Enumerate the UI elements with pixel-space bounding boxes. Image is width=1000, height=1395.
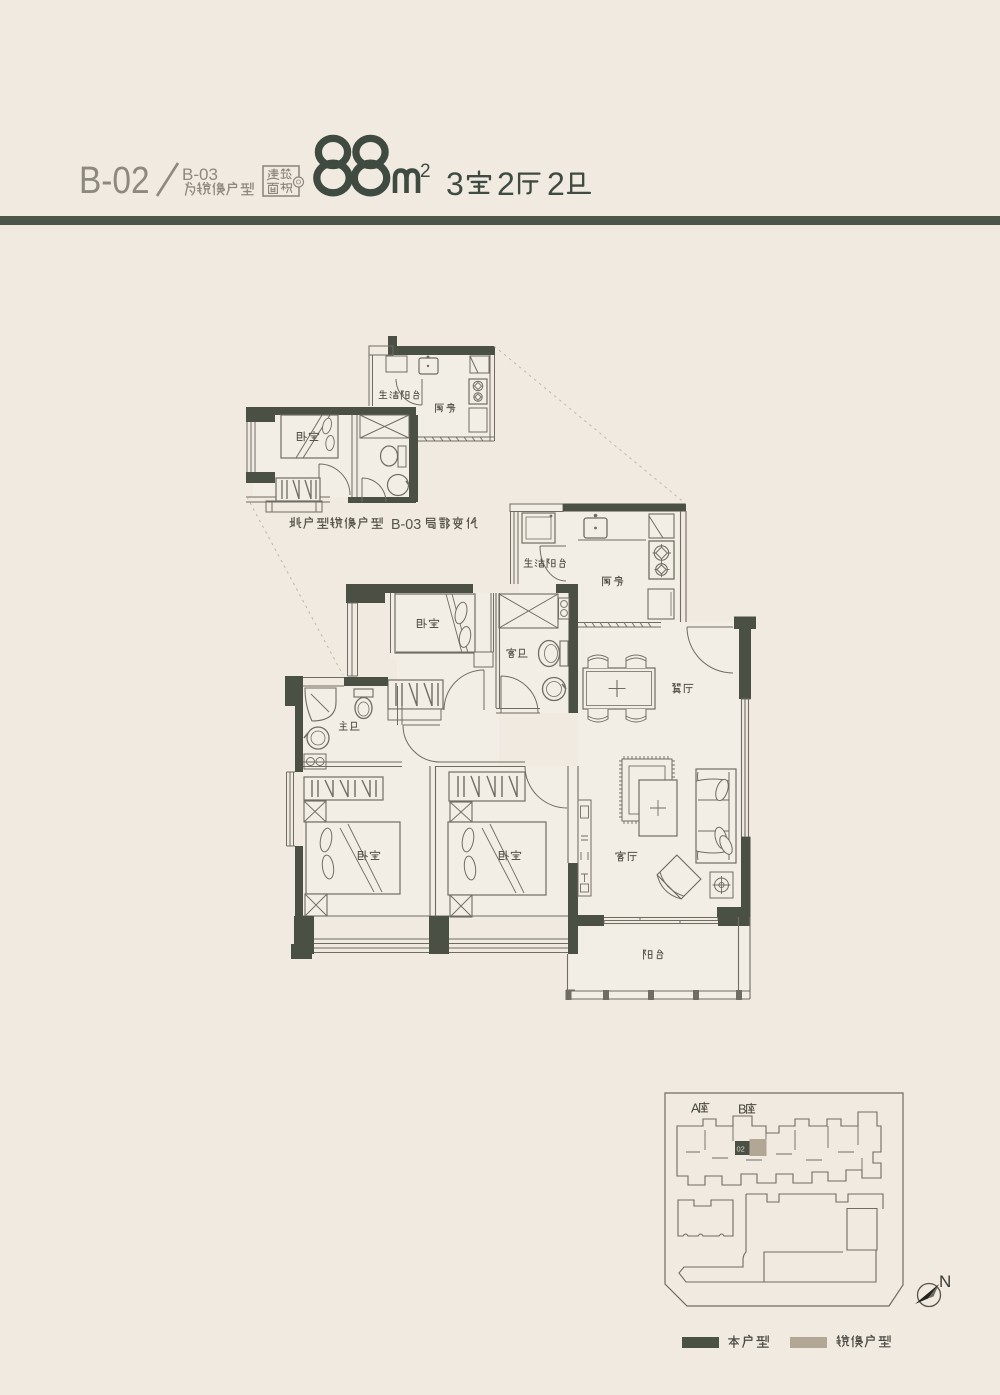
svg-text:A: A bbox=[691, 1101, 700, 1116]
svg-text:2: 2 bbox=[420, 161, 431, 182]
svg-text:B-02: B-02 bbox=[79, 159, 150, 201]
svg-text:02: 02 bbox=[737, 1145, 745, 1154]
svg-text:2: 2 bbox=[497, 166, 515, 202]
svg-text:2: 2 bbox=[547, 166, 565, 202]
svg-text:N: N bbox=[939, 1272, 951, 1291]
svg-text:B-03: B-03 bbox=[182, 165, 218, 184]
svg-text:B: B bbox=[738, 1102, 747, 1117]
svg-text:B-03: B-03 bbox=[391, 517, 421, 533]
svg-text:3: 3 bbox=[446, 166, 464, 202]
